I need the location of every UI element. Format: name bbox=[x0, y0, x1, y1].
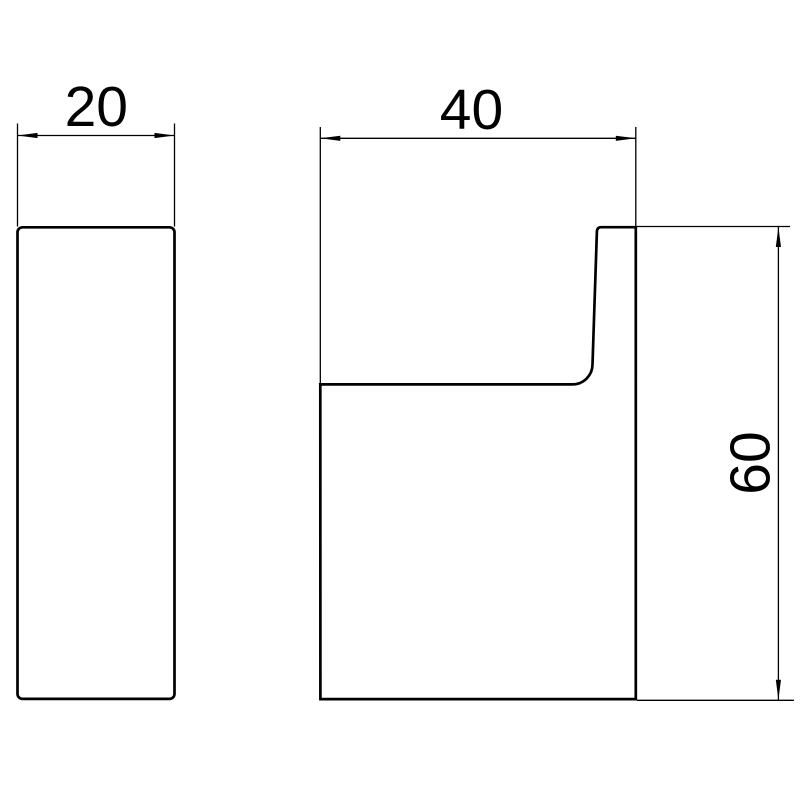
svg-text:20: 20 bbox=[65, 75, 128, 139]
svg-text:60: 60 bbox=[719, 431, 783, 494]
svg-text:40: 40 bbox=[440, 78, 503, 142]
